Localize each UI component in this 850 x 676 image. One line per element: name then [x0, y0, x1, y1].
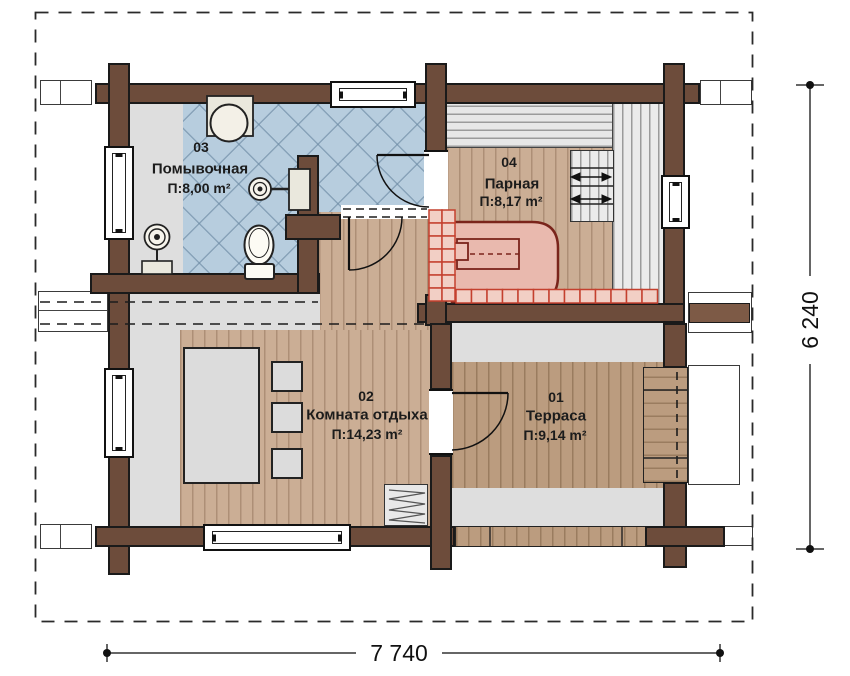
room-04-number: 04 [501, 154, 517, 170]
steps-outline [688, 365, 740, 485]
dimension-width: 7 740 [103, 639, 724, 666]
log-end-bottom-left [40, 524, 92, 549]
room-01-floor [452, 362, 663, 488]
room-03-number: 03 [193, 139, 209, 155]
table [183, 347, 260, 484]
terrace-gray-top [452, 323, 663, 362]
chair [271, 361, 303, 392]
chair [271, 448, 303, 479]
room-02-number: 02 [358, 388, 374, 404]
wall-03-04 [425, 63, 447, 155]
wall-02-01-lower [430, 455, 452, 570]
door-opening-hall-03 [341, 205, 429, 219]
terrace-step-bottom [455, 526, 655, 547]
dimension-width-label: 7 740 [370, 640, 428, 666]
terrace-steps-right [643, 367, 688, 483]
terrace-gray-bottom [452, 488, 663, 526]
door-opening-02-01 [429, 389, 453, 455]
floor-plan: 7 740 6 240 03 Помывочная П:8,00 m² 04 П… [0, 0, 850, 676]
hatch-symbol [384, 484, 428, 526]
log-end-top-left [40, 80, 92, 105]
sauna-bench-right [612, 104, 663, 323]
log-stub-middle-right [689, 303, 750, 323]
log-end-top-right [700, 80, 752, 105]
window [104, 146, 134, 240]
room-02-area: П:14,23 m² [332, 426, 403, 442]
room-01-number: 01 [548, 389, 564, 405]
room-01-name: Терраса [526, 408, 586, 425]
dimension-height-label: 6 240 [797, 291, 823, 349]
wall-middle [417, 303, 685, 323]
wall-middle-stub [425, 294, 447, 326]
wall-03-bottom [90, 273, 320, 294]
window [661, 175, 690, 229]
window [330, 81, 416, 108]
divider-band [130, 294, 320, 330]
sauna-bench-top [447, 104, 614, 148]
room-02-gray-strip [130, 330, 180, 526]
room-02-name: Комната отдыха [306, 407, 427, 424]
room-03-area: П:8,00 m² [168, 180, 231, 196]
door-opening-03-04 [424, 150, 448, 212]
window [203, 524, 351, 551]
room-03-name: Помывочная [152, 161, 248, 178]
wall-bottom-right-stub [645, 526, 725, 547]
terrace-post-top [663, 323, 687, 368]
room-04-area: П:8,17 m² [480, 193, 543, 209]
dimension-height: 6 240 [796, 81, 824, 553]
wall-left [108, 63, 130, 575]
terrace-post-bottom [663, 482, 687, 568]
wall-partition-stub [285, 214, 341, 240]
window [104, 368, 134, 458]
wall-02-01-upper [430, 323, 452, 390]
bench-steps [570, 150, 614, 222]
room-04-name: Парная [485, 176, 539, 193]
log-end-middle-left [38, 291, 108, 332]
chair [271, 402, 303, 433]
room-01-area: П:9,14 m² [524, 427, 587, 443]
